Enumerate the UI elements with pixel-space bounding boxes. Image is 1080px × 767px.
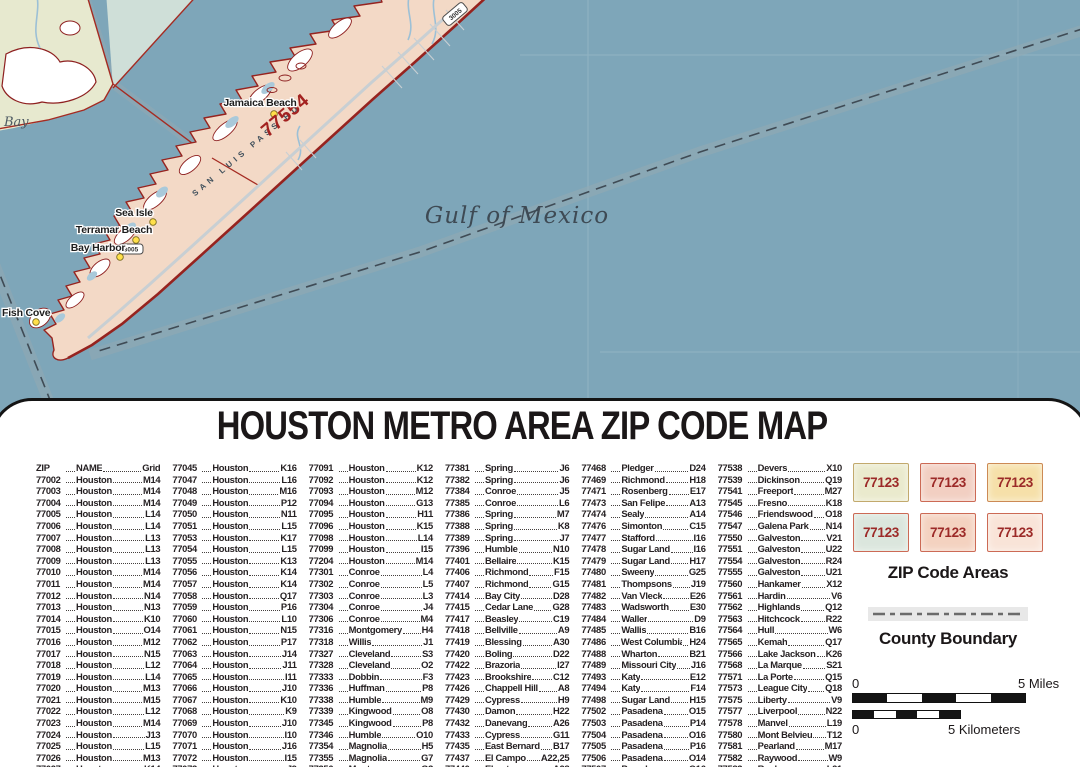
zip-row: 77433CypressG11 [445, 729, 569, 741]
zip-row: 77503PasadenaP14 [581, 717, 705, 729]
zip-row: 77550GalvestonV21 [718, 532, 842, 544]
zip-row: 77545FresnoK18 [718, 497, 842, 509]
zip-row: 77013HoustonN13 [36, 601, 160, 613]
zip-row: 77354MagnoliaH5 [309, 740, 433, 752]
zip-row: 77554GalvestonR24 [718, 555, 842, 567]
zip-row: 77346HumbleO10 [309, 729, 433, 741]
zip-row: 77566Lake JacksonK26 [718, 648, 842, 660]
zip-area-swatch: 77123 [853, 513, 909, 552]
zip-row: 77486West ColumbiaH24 [581, 636, 705, 648]
zip-row: 77204HoustonM14 [309, 555, 433, 567]
page-title: HOUSTON METRO AREA ZIP CODE MAP [94, 404, 950, 449]
zip-row: 77006HoustonL14 [36, 520, 160, 532]
kilometers-labels: 0 5 Kilometers [852, 722, 1024, 739]
zip-row: 77014HoustonK10 [36, 613, 160, 625]
town-dot [133, 237, 140, 244]
zip-column-6: 77538DeversX1077539DickinsonQ1977541Free… [718, 462, 842, 767]
zip-row: 77095HoustonH11 [309, 508, 433, 520]
zip-row: 77546FriendswoodO18 [718, 508, 842, 520]
zip-row: 77417BeasleyC19 [445, 613, 569, 625]
zip-row: 77489Missouri CityJ16 [581, 659, 705, 671]
zip-row: 77018HoustonL12 [36, 659, 160, 671]
zip-row: 77562HighlandsQ12 [718, 601, 842, 613]
zip-row: 77345KingwoodP8 [309, 717, 433, 729]
zip-row: 77561HardinV6 [718, 590, 842, 602]
zip-row: 77333DobbinF3 [309, 671, 433, 683]
zip-row: 77064HoustonJ11 [172, 659, 296, 671]
zip-row: 77096HoustonK15 [309, 520, 433, 532]
zip-row: 77053HoustonK17 [172, 532, 296, 544]
zip-row: 77045HoustonK16 [172, 462, 296, 474]
town-dot [33, 319, 40, 326]
zip-row: 77073HoustonJ9 [172, 763, 296, 767]
zip-row: 77382SpringJ6 [445, 474, 569, 486]
town-label-terramar-beach: Terramar Beach [76, 224, 152, 236]
zip-row: 77396HumbleN10 [445, 543, 569, 555]
zip-row: 77389SpringJ7 [445, 532, 569, 544]
zip-row: 77504PasadenaO16 [581, 729, 705, 741]
zip-row: 77385ConroeL6 [445, 497, 569, 509]
zip-row: 77306ConroeM4 [309, 613, 433, 625]
zip-row: 77054HoustonL15 [172, 543, 296, 555]
zip-row: 77060HoustonL10 [172, 613, 296, 625]
zip-row: 77423BrookshireC12 [445, 671, 569, 683]
zip-row: 77063HoustonJ14 [172, 648, 296, 660]
zip-row: 77051HoustonL15 [172, 520, 296, 532]
zip-row: 77304ConroeJ4 [309, 601, 433, 613]
zip-row: 77007HoustonL13 [36, 532, 160, 544]
zip-row: 77355MagnoliaG7 [309, 752, 433, 764]
zip-row: 77336HuffmanP8 [309, 682, 433, 694]
zip-row: 77539DickinsonQ19 [718, 474, 842, 486]
zip-row: 77069HoustonJ10 [172, 717, 296, 729]
zip-row: 77003HoustonM14 [36, 485, 160, 497]
zip-row: 77440ElmatonA28 [445, 763, 569, 767]
zip-row: 77541FreeportM27 [718, 485, 842, 497]
zip-column-4: 77381SpringJ677382SpringJ677384ConroeJ57… [445, 462, 569, 767]
zip-row: 77429CypressH9 [445, 694, 569, 706]
zip-row: 77573League CityQ18 [718, 682, 842, 694]
zip-row: 77384ConroeJ5 [445, 485, 569, 497]
zipcode-map-page: 3005 3005 SAN LUIS PASS RD 77554 Jamaica… [0, 0, 1080, 767]
zip-area-swatch: 77123 [987, 513, 1043, 552]
county-boundary-label: County Boundary [852, 629, 1044, 649]
miles-zero: 0 [852, 676, 859, 691]
zip-row: 77481ThompsonsJ19 [581, 578, 705, 590]
zip-row: 77507PasadenaQ16 [581, 763, 705, 767]
zip-row: 77575LibertyV9 [718, 694, 842, 706]
zip-row: 77426Chappell HillA8 [445, 682, 569, 694]
zip-row: 77414Bay CityD28 [445, 590, 569, 602]
zip-column-5: 77468PledgerD2477469RichmondH1877471Rose… [581, 462, 705, 767]
town-label-bay-harbor: Bay Harbor [71, 242, 126, 254]
zip-row: 77488WhartonB21 [581, 648, 705, 660]
kilometers-bar [852, 710, 961, 719]
zip-row: 77023HoustonM14 [36, 717, 160, 729]
map-canvas: 3005 3005 SAN LUIS PASS RD 77554 Jamaica… [0, 0, 1080, 402]
miles-label: 5 Miles [1018, 676, 1059, 691]
zip-row: 77048HoustonM16 [172, 485, 296, 497]
zip-row: 77483WadsworthE30 [581, 601, 705, 613]
zip-area-swatch: 77123 [920, 463, 976, 502]
zip-row: 77026HoustonM13 [36, 752, 160, 764]
zip-row: 77406RichmondF15 [445, 566, 569, 578]
zip-row: 77025HoustonL15 [36, 740, 160, 752]
gulf-of-mexico-label: Gulf of Mexico [425, 203, 609, 229]
miles-labels: 0 5 Miles [852, 676, 1024, 693]
zip-column-1: ZIPNAMEGrid77002HoustonM1477003HoustonM1… [36, 462, 160, 767]
zip-row: 77009HoustonL13 [36, 555, 160, 567]
zip-row: 77388SpringK8 [445, 520, 569, 532]
zip-row: 77027HoustonK14 [36, 763, 160, 767]
zip-row: 77581PearlandM17 [718, 740, 842, 752]
zip-row: 77469RichmondH18 [581, 474, 705, 486]
zip-area-swatch: 77123 [987, 463, 1043, 502]
zip-row: 77502PasadenaO15 [581, 705, 705, 717]
zip-row: 77578ManvelL19 [718, 717, 842, 729]
zip-row: 77327ClevelandS3 [309, 648, 433, 660]
zip-row: 77381SpringJ6 [445, 462, 569, 474]
zip-row: 77061HoustonN15 [172, 624, 296, 636]
zip-row: 77316MontgomeryH4 [309, 624, 433, 636]
zip-row: 77538DeversX10 [718, 462, 842, 474]
zip-row: 77065HoustonI11 [172, 671, 296, 683]
zip-row: 77555GalvestonU21 [718, 566, 842, 578]
zip-row: 77071HoustonJ16 [172, 740, 296, 752]
zip-row: 77303ConroeL3 [309, 590, 433, 602]
zip-row: 77020HoustonM13 [36, 682, 160, 694]
zip-row: 77498Sugar LandH15 [581, 694, 705, 706]
town-label-jamaica-beach: Jamaica Beach [223, 97, 296, 109]
zip-row: 77505PasadenaP16 [581, 740, 705, 752]
zip-index: ZIPNAMEGrid77002HoustonM1477003HoustonM1… [36, 462, 842, 767]
zip-row: 77002HoustonM14 [36, 474, 160, 486]
zip-row: 77055HoustonK13 [172, 555, 296, 567]
zip-row: 77339KingwoodO8 [309, 705, 433, 717]
town-label-fish-cove: Fish Cove [2, 307, 51, 319]
zip-row: 77057HoustonK14 [172, 578, 296, 590]
zip-row: 77477StaffordI16 [581, 532, 705, 544]
zip-row: 77437El CampoA22,25 [445, 752, 569, 764]
zip-row: 77049HoustonP12 [172, 497, 296, 509]
zip-row: 77484WallerD9 [581, 613, 705, 625]
zip-row: 77092HoustonK12 [309, 474, 433, 486]
zip-row: 77401BellaireK15 [445, 555, 569, 567]
zip-area-swatch: 77123 [853, 463, 909, 502]
zip-row: 77021HoustonM15 [36, 694, 160, 706]
zip-row: 77430DamonH22 [445, 705, 569, 717]
zip-row: 77091HoustonK12 [309, 462, 433, 474]
zip-swatches: 771237712377123771237712377123 [852, 463, 1044, 552]
zip-row: 77506PasadenaO14 [581, 752, 705, 764]
zip-row: 77564HullW6 [718, 624, 842, 636]
zip-row: 77476SimontonC15 [581, 520, 705, 532]
zip-row: 77099HoustonI15 [309, 543, 433, 555]
zip-row: 77479Sugar LandH17 [581, 555, 705, 567]
zip-row: 77565KemahQ17 [718, 636, 842, 648]
zip-row: 77568La MarqueS21 [718, 659, 842, 671]
zip-row: 77016HoustonM12 [36, 636, 160, 648]
zip-row: 77005HoustonL14 [36, 508, 160, 520]
zip-row: 77338HumbleM9 [309, 694, 433, 706]
zip-row: 77563HitchcockR22 [718, 613, 842, 625]
zip-row: 77070HoustonI10 [172, 729, 296, 741]
zip-row: 77059HoustonP16 [172, 601, 296, 613]
zip-row: 77422BrazoriaI27 [445, 659, 569, 671]
town-label-sea-isle: Sea Isle [115, 207, 153, 219]
zip-row: 77386SpringM7 [445, 508, 569, 520]
zip-column-3: 77091HoustonK1277092HoustonK1277093Houst… [309, 462, 433, 767]
zip-row: 77577LiverpoolN22 [718, 705, 842, 717]
zip-row: 77583RosharonL21 [718, 763, 842, 767]
zip-row: 77010HoustonM14 [36, 566, 160, 578]
zip-row: 77473San FelipeA13 [581, 497, 705, 509]
zip-row: 77482Van VleckE26 [581, 590, 705, 602]
town-dot [117, 254, 124, 261]
zip-row: 77356MontgomeryG3 [309, 763, 433, 767]
zip-row: 77560HankamerX12 [718, 578, 842, 590]
zip-row: 77098HoustonL14 [309, 532, 433, 544]
zip-row: 77056HoustonK14 [172, 566, 296, 578]
zip-row: 77415Cedar LaneG28 [445, 601, 569, 613]
zip-row: 77012HoustonN14 [36, 590, 160, 602]
miles-bar [852, 693, 1026, 703]
zip-row: 77066HoustonJ10 [172, 682, 296, 694]
zip-row: 77407RichmondG15 [445, 578, 569, 590]
zip-row: 77478Sugar LandI16 [581, 543, 705, 555]
zip-row: 77008HoustonL13 [36, 543, 160, 555]
zip-row: 77480SweenyG25 [581, 566, 705, 578]
zip-row: 77050HoustonN11 [172, 508, 296, 520]
bay-label: Bay [3, 115, 29, 130]
zip-row: 77017HoustonN15 [36, 648, 160, 660]
zip-row: 77571La PorteQ15 [718, 671, 842, 683]
svg-text:3005: 3005 [124, 246, 139, 253]
zip-row: 77093HoustonM12 [309, 485, 433, 497]
scale-bar: 0 5 Miles 0 5 Kilometers [852, 676, 1024, 739]
zip-row: 77302ConroeL5 [309, 578, 433, 590]
zip-row: 77328ClevelandO2 [309, 659, 433, 671]
zip-row: 77301ConroeL4 [309, 566, 433, 578]
zip-row: 77432DanevangA26 [445, 717, 569, 729]
zip-row: ZIPNAMEGrid [36, 462, 160, 474]
zip-areas-label: ZIP Code Areas [852, 563, 1044, 583]
zip-row: 77047HoustonL16 [172, 474, 296, 486]
zip-row: 77015HoustonO14 [36, 624, 160, 636]
kilometers-zero: 0 [852, 722, 859, 737]
county-boundary-sample [868, 607, 1028, 621]
zip-row: 77468PledgerD24 [581, 462, 705, 474]
zip-row: 77062HoustonP17 [172, 636, 296, 648]
zip-row: 77072HoustonI15 [172, 752, 296, 764]
zip-row: 77318WillisJ1 [309, 636, 433, 648]
zip-row: 77551GalvestonU22 [718, 543, 842, 555]
zip-row: 77494KatyF14 [581, 682, 705, 694]
zip-row: 77058HoustonQ17 [172, 590, 296, 602]
county-boundary-legend: County Boundary [852, 607, 1044, 649]
zip-row: 77547Galena ParkN14 [718, 520, 842, 532]
zip-row: 77493KatyE12 [581, 671, 705, 683]
zip-row: 77094HoustonG13 [309, 497, 433, 509]
zip-row: 77580Mont BelvieuT12 [718, 729, 842, 741]
zip-row: 77024HoustonJ13 [36, 729, 160, 741]
zip-row: 77418BellvilleA9 [445, 624, 569, 636]
legend: 771237712377123771237712377123 ZIP Code … [852, 463, 1044, 739]
kilometers-label: 5 Kilometers [948, 722, 1020, 737]
zip-row: 77004HoustonM14 [36, 497, 160, 509]
zip-row: 77419BlessingA30 [445, 636, 569, 648]
zip-row: 77485WallisB16 [581, 624, 705, 636]
zip-row: 77420BolingD22 [445, 648, 569, 660]
zip-row: 77067HoustonK10 [172, 694, 296, 706]
zip-row: 77474SealyA14 [581, 508, 705, 520]
zip-row: 77068HoustonK9 [172, 705, 296, 717]
zip-row: 77471RosenbergE17 [581, 485, 705, 497]
zip-row: 77011HoustonM14 [36, 578, 160, 590]
zip-row: 77022HoustonL12 [36, 705, 160, 717]
zip-row: 77435East BernardB17 [445, 740, 569, 752]
zip-column-2: 77045HoustonK1677047HoustonL1677048Houst… [172, 462, 296, 767]
zip-row: 77582RaywoodW9 [718, 752, 842, 764]
zip-area-swatch: 77123 [920, 513, 976, 552]
zip-row: 77019HoustonL14 [36, 671, 160, 683]
